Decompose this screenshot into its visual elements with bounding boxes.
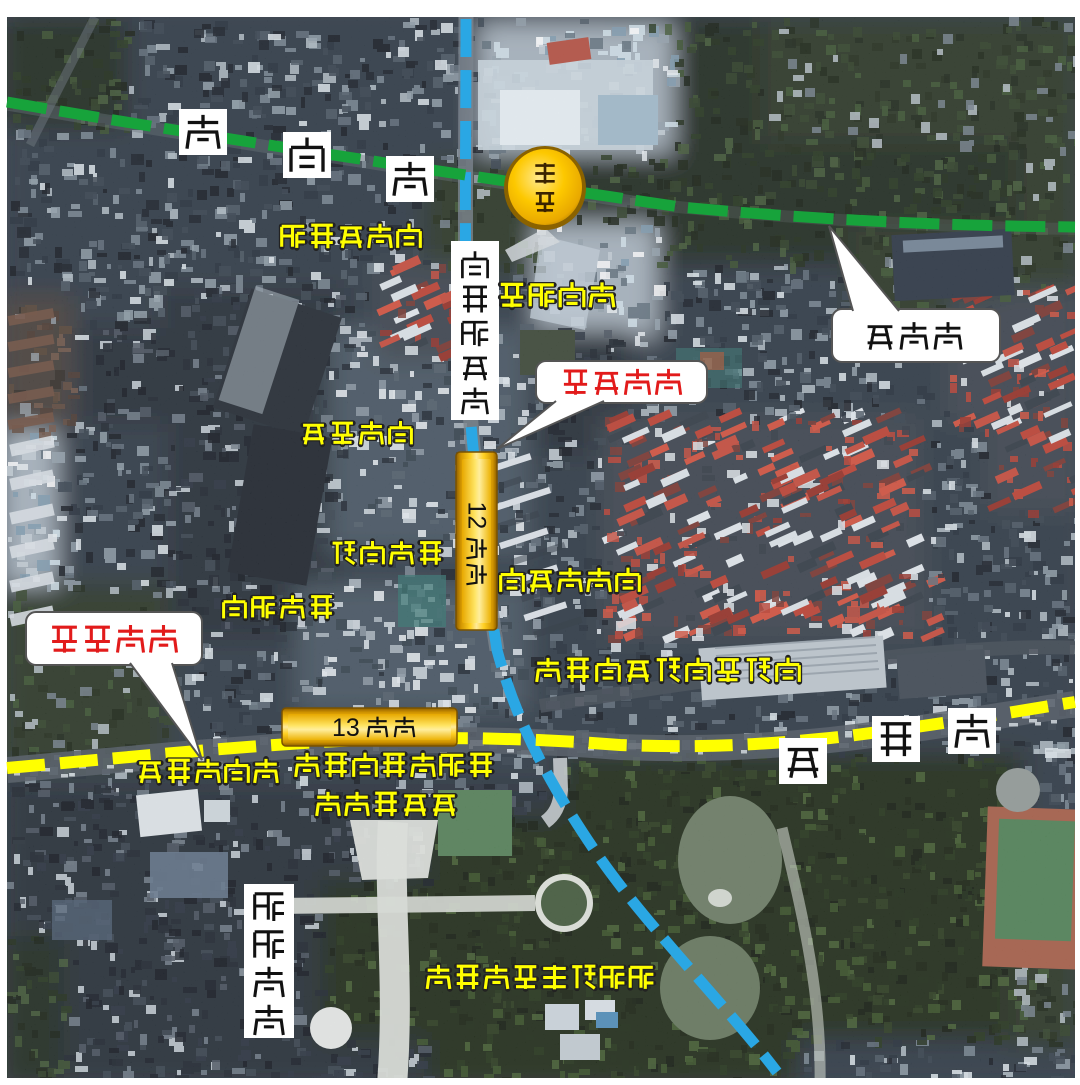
svg-text:12: 12	[463, 502, 491, 530]
svg-text:13: 13	[332, 714, 360, 742]
